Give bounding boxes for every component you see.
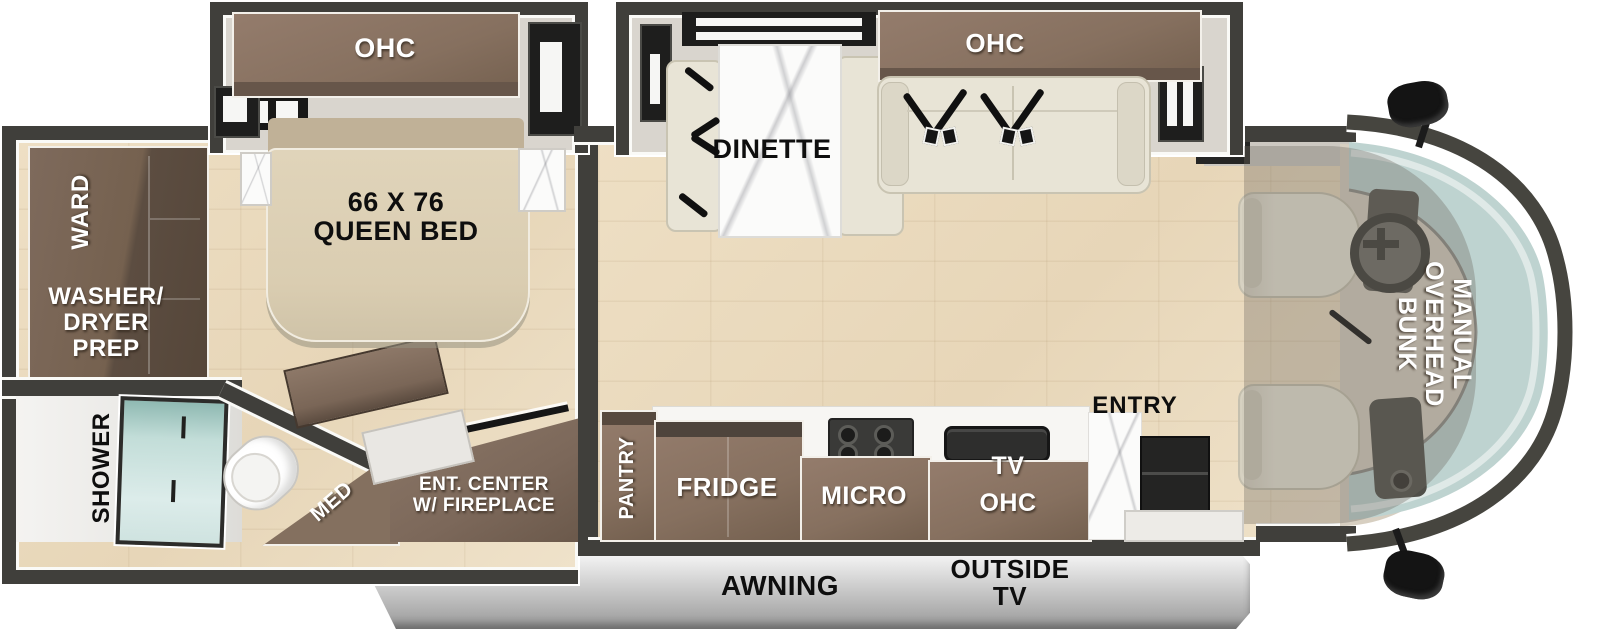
overhead-bunk-label: MANUAL OVERHEAD BUNK — [1379, 179, 1475, 489]
bedroom-ohc-label: OHC — [330, 30, 440, 66]
window-pane — [696, 32, 862, 40]
tv-label: TV — [968, 452, 1048, 480]
dinette-top-window — [682, 12, 876, 46]
exterior-wall — [588, 540, 1260, 556]
side-mirror-icon — [1385, 77, 1452, 131]
cabinet-top-edge — [602, 412, 656, 425]
bath-wall — [2, 380, 242, 396]
micro-label: MICRO — [806, 480, 922, 512]
sofa-ohc-label: OHC — [940, 26, 1050, 60]
window-pane — [650, 54, 660, 104]
exterior-wall — [1256, 526, 1356, 542]
fridge-label: FRIDGE — [662, 470, 792, 504]
shower-label: SHOWER — [32, 398, 172, 538]
window-pane — [540, 42, 562, 112]
nightstand — [518, 148, 566, 212]
entry-steps — [1140, 436, 1210, 514]
tv-ohc-label: OHC — [962, 488, 1054, 518]
fridge-top-edge — [656, 422, 802, 437]
side-mirror-icon — [1380, 546, 1448, 603]
stove-burner — [874, 425, 894, 445]
entry-label: ENTRY — [1080, 392, 1190, 420]
step-edge — [1142, 472, 1208, 475]
awning-label: AWNING — [690, 570, 870, 602]
cabinet-door-seam — [150, 218, 200, 220]
window-pane — [696, 18, 862, 26]
window-pane — [1167, 78, 1177, 126]
ward-label: WARD — [31, 162, 131, 262]
cabinet-bottom-edge — [234, 82, 518, 96]
window-pane — [223, 96, 247, 122]
entry-landing — [1124, 510, 1244, 542]
bed-size-label: 66 X 76 QUEEN BED — [296, 188, 496, 246]
outside-tv-label: OUTSIDE TV — [930, 556, 1090, 609]
seatbelt-buckle-icon — [1017, 127, 1035, 147]
rv-floorplan: AWNING OUTSIDE TV WARD WASHER/ DRYER PRE… — [0, 0, 1600, 635]
nightstand — [240, 152, 272, 206]
shower-door-handle — [181, 416, 186, 438]
washer-dryer-prep-label: WASHER/ DRYER PREP — [26, 284, 186, 362]
window-pane — [1183, 78, 1193, 126]
dinette-label: DINETTE — [692, 132, 852, 166]
sofa-back-seam — [907, 110, 1117, 112]
stove-burner — [838, 425, 858, 445]
ent-center-label: ENT. CENTER W/ FIREPLACE — [396, 474, 572, 517]
seatbelt-buckle-icon — [940, 127, 958, 147]
sofa-armrest — [1117, 82, 1145, 186]
bedroom-right-window — [528, 22, 582, 136]
